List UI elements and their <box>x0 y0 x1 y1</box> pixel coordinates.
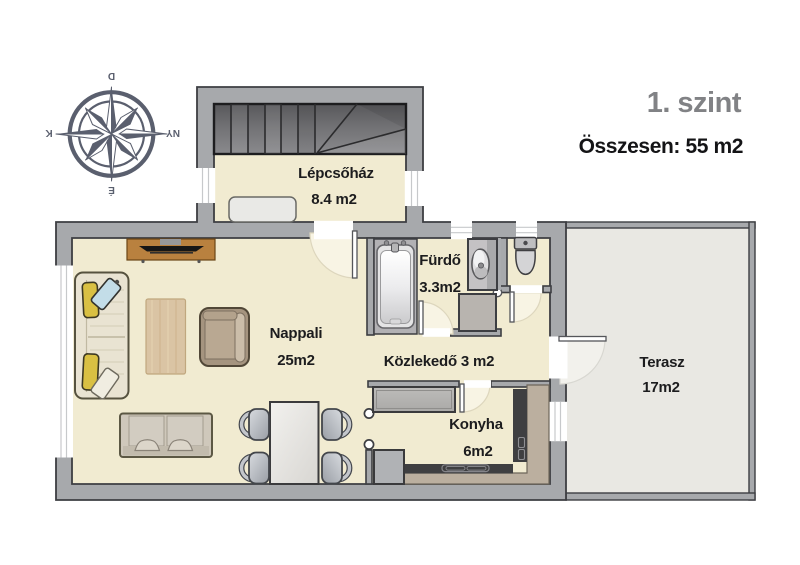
svg-text:3.3m2: 3.3m2 <box>419 279 461 296</box>
svg-text:25m2: 25m2 <box>277 352 315 369</box>
svg-text:K: K <box>45 127 53 138</box>
svg-text:NY: NY <box>166 127 180 138</box>
svg-text:1. szint: 1. szint <box>647 87 742 119</box>
svg-text:Összesen: 55 m2: Összesen: 55 m2 <box>579 135 743 158</box>
svg-text:8.4 m2: 8.4 m2 <box>311 191 357 208</box>
svg-text:D: D <box>108 70 115 81</box>
svg-text:Fürdő: Fürdő <box>419 252 461 269</box>
svg-text:É: É <box>108 184 115 197</box>
svg-text:17m2: 17m2 <box>642 379 680 396</box>
svg-text:Lépcsőház: Lépcsőház <box>298 165 374 182</box>
svg-text:6m2: 6m2 <box>463 443 492 460</box>
svg-text:Közlekedő 3 m2: Közlekedő 3 m2 <box>384 353 495 370</box>
svg-text:Konyha: Konyha <box>449 416 504 433</box>
svg-text:Nappali: Nappali <box>270 325 323 342</box>
svg-text:Terasz: Terasz <box>639 354 684 371</box>
